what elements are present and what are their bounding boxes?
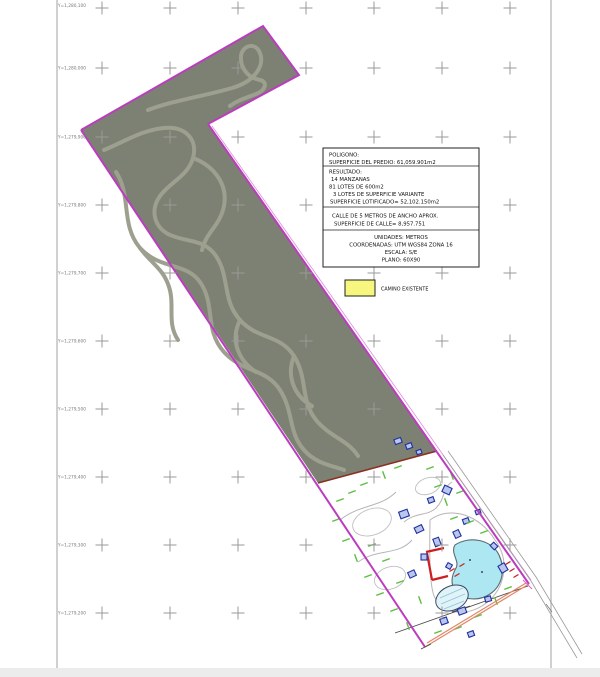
structure-footprint — [484, 596, 491, 602]
grid-row-label: Y=1,280,100 — [57, 3, 86, 9]
grid-cross — [504, 471, 517, 484]
grid-cross — [300, 471, 313, 484]
grid-cross — [232, 471, 245, 484]
grid-cross — [504, 2, 517, 15]
grid-cross — [368, 607, 381, 620]
plano: PLANO: 60X90 — [382, 258, 421, 264]
vegetation-dash — [364, 575, 372, 578]
grid-cross — [504, 199, 517, 212]
unidades: UNIDADES: METROS — [374, 235, 428, 241]
grid-cross — [300, 62, 313, 75]
grid-cross — [164, 607, 177, 620]
vegetation-dash — [342, 539, 350, 542]
survey-plan-canvas: Y=1,280,100Y=1,280,000Y=1,279,900Y=1,279… — [0, 0, 600, 677]
vegetation-dash — [390, 609, 398, 612]
grid-row-label: Y=1,279,500 — [57, 407, 86, 413]
grid-cross — [300, 607, 313, 620]
grid-cross — [300, 199, 313, 212]
grid-row-label: Y=1,279,400 — [57, 475, 86, 481]
grid-cross — [164, 62, 177, 75]
grid-cross — [436, 2, 449, 15]
grid-cross — [368, 335, 381, 348]
grid-cross — [232, 539, 245, 552]
grid-cross — [232, 607, 245, 620]
grid-cross — [504, 335, 517, 348]
grid-cross — [164, 403, 177, 416]
grid-row-label: Y=1,279,200 — [57, 611, 86, 617]
structure-footprint — [467, 631, 474, 638]
grid-row-labels: Y=1,280,100Y=1,280,000Y=1,279,900Y=1,279… — [57, 3, 86, 617]
grid-row-label: Y=1,279,700 — [57, 271, 86, 277]
grid-cross — [164, 539, 177, 552]
calle-ancho: CALLE DE 5 METROS DE ANCHO APROX. — [332, 214, 439, 220]
escala: ESCALA: S/E — [385, 250, 418, 256]
info-panel: POLIGONO: SUPERFICIE DEL PREDIO: 61,059.… — [323, 148, 479, 267]
grid-cross — [232, 131, 245, 144]
vegetation-dash — [355, 554, 358, 562]
legend-camino-label: CAMINO EXISTENTE — [381, 287, 428, 293]
grid-cross — [96, 2, 109, 15]
superficie-predio: SUPERFICIE DEL PREDIO: 61,059.901m2 — [329, 160, 436, 166]
grid-row-label: Y=1,279,300 — [57, 543, 86, 549]
lotes-variante: 3 LOTES DE SUPERFICIE VARIANTE — [333, 192, 425, 198]
grid-cross — [96, 471, 109, 484]
grid-cross — [96, 539, 109, 552]
grid-cross — [96, 335, 109, 348]
lotes-600: 81 LOTES DE 600m2 — [329, 185, 384, 191]
vegetation-dash — [376, 593, 384, 596]
grid-row-label: Y=1,279,800 — [57, 203, 86, 209]
grid-row-label: Y=1,280,000 — [57, 66, 86, 72]
resultado-title: RESULTADO: — [329, 170, 362, 176]
grid-cross — [368, 131, 381, 144]
page-edge-band — [0, 668, 600, 677]
grid-cross — [164, 2, 177, 15]
grid-cross — [96, 62, 109, 75]
grid-cross — [96, 403, 109, 416]
grid-cross — [232, 403, 245, 416]
grid-cross — [300, 2, 313, 15]
legend-swatch-camino — [345, 280, 375, 296]
structure-footprint — [416, 449, 422, 454]
grid-cross — [436, 335, 449, 348]
poligono-title: POLIGONO: — [329, 153, 359, 159]
manzanas: 14 MANZANAS — [331, 177, 370, 183]
grid-cross — [368, 267, 381, 280]
grid-cross — [504, 607, 517, 620]
grid-cross — [96, 199, 109, 212]
pond-mark — [469, 559, 471, 561]
grid-cross — [504, 403, 517, 416]
grid-cross — [368, 62, 381, 75]
grid-cross — [164, 471, 177, 484]
vegetation-dash — [332, 519, 340, 522]
grid-cross — [96, 607, 109, 620]
grid-cross — [436, 131, 449, 144]
grid-cross — [504, 131, 517, 144]
grid-cross — [232, 2, 245, 15]
grid-cross — [368, 2, 381, 15]
legend: CAMINO EXISTENTE — [345, 280, 428, 296]
grid-row-label: Y=1,279,600 — [57, 339, 86, 345]
grid-row-label: Y=1,279,900 — [57, 135, 86, 141]
superficie-lotificado: SUPERFICIE LOTIFICADO= 52,102.150m2 — [330, 200, 439, 206]
grid-cross — [436, 403, 449, 416]
structure-footprint — [421, 554, 427, 560]
grid-cross — [96, 267, 109, 280]
grid-cross — [504, 267, 517, 280]
pond-mark — [481, 571, 483, 573]
grid-cross — [300, 539, 313, 552]
grid-cross — [300, 131, 313, 144]
grid-cross — [504, 62, 517, 75]
coordenadas: COORDENADAS: UTM WGS84 ZONA 16 — [349, 243, 453, 249]
plan-drawing: Y=1,280,100Y=1,280,000Y=1,279,900Y=1,279… — [0, 0, 600, 677]
superficie-calle: SUPERFICIE DE CALLE= 8,957.751 — [334, 222, 425, 228]
grid-cross — [436, 62, 449, 75]
grid-cross — [436, 267, 449, 280]
